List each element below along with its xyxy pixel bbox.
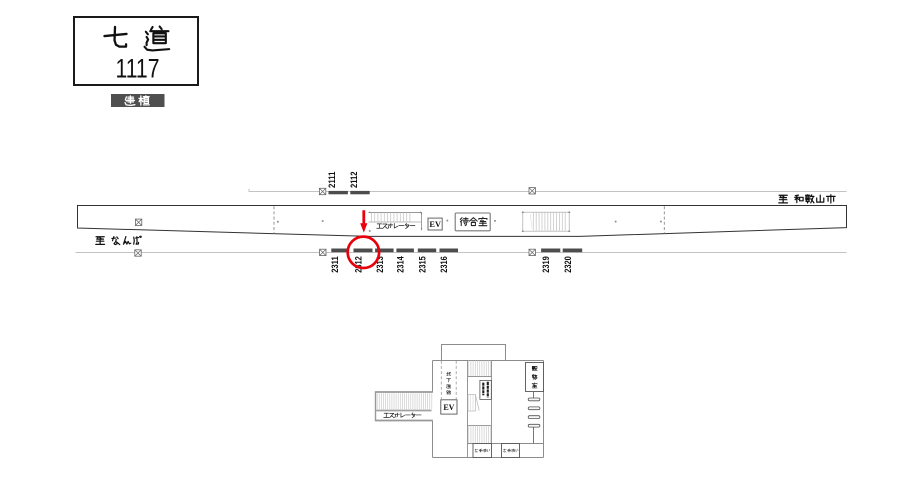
svg-text:2320: 2320 [563, 256, 573, 273]
svg-text:2315: 2315 [417, 256, 427, 273]
svg-text:2319: 2319 [541, 256, 551, 273]
svg-text:EV: EV [429, 220, 441, 229]
svg-text:2311: 2311 [330, 256, 340, 273]
svg-text:EV: EV [443, 403, 454, 412]
svg-text:1117: 1117 [116, 54, 160, 84]
svg-text:2112: 2112 [349, 172, 359, 189]
svg-text:2314: 2314 [396, 256, 406, 273]
svg-text:2111: 2111 [327, 172, 337, 189]
svg-text:2316: 2316 [439, 256, 449, 273]
